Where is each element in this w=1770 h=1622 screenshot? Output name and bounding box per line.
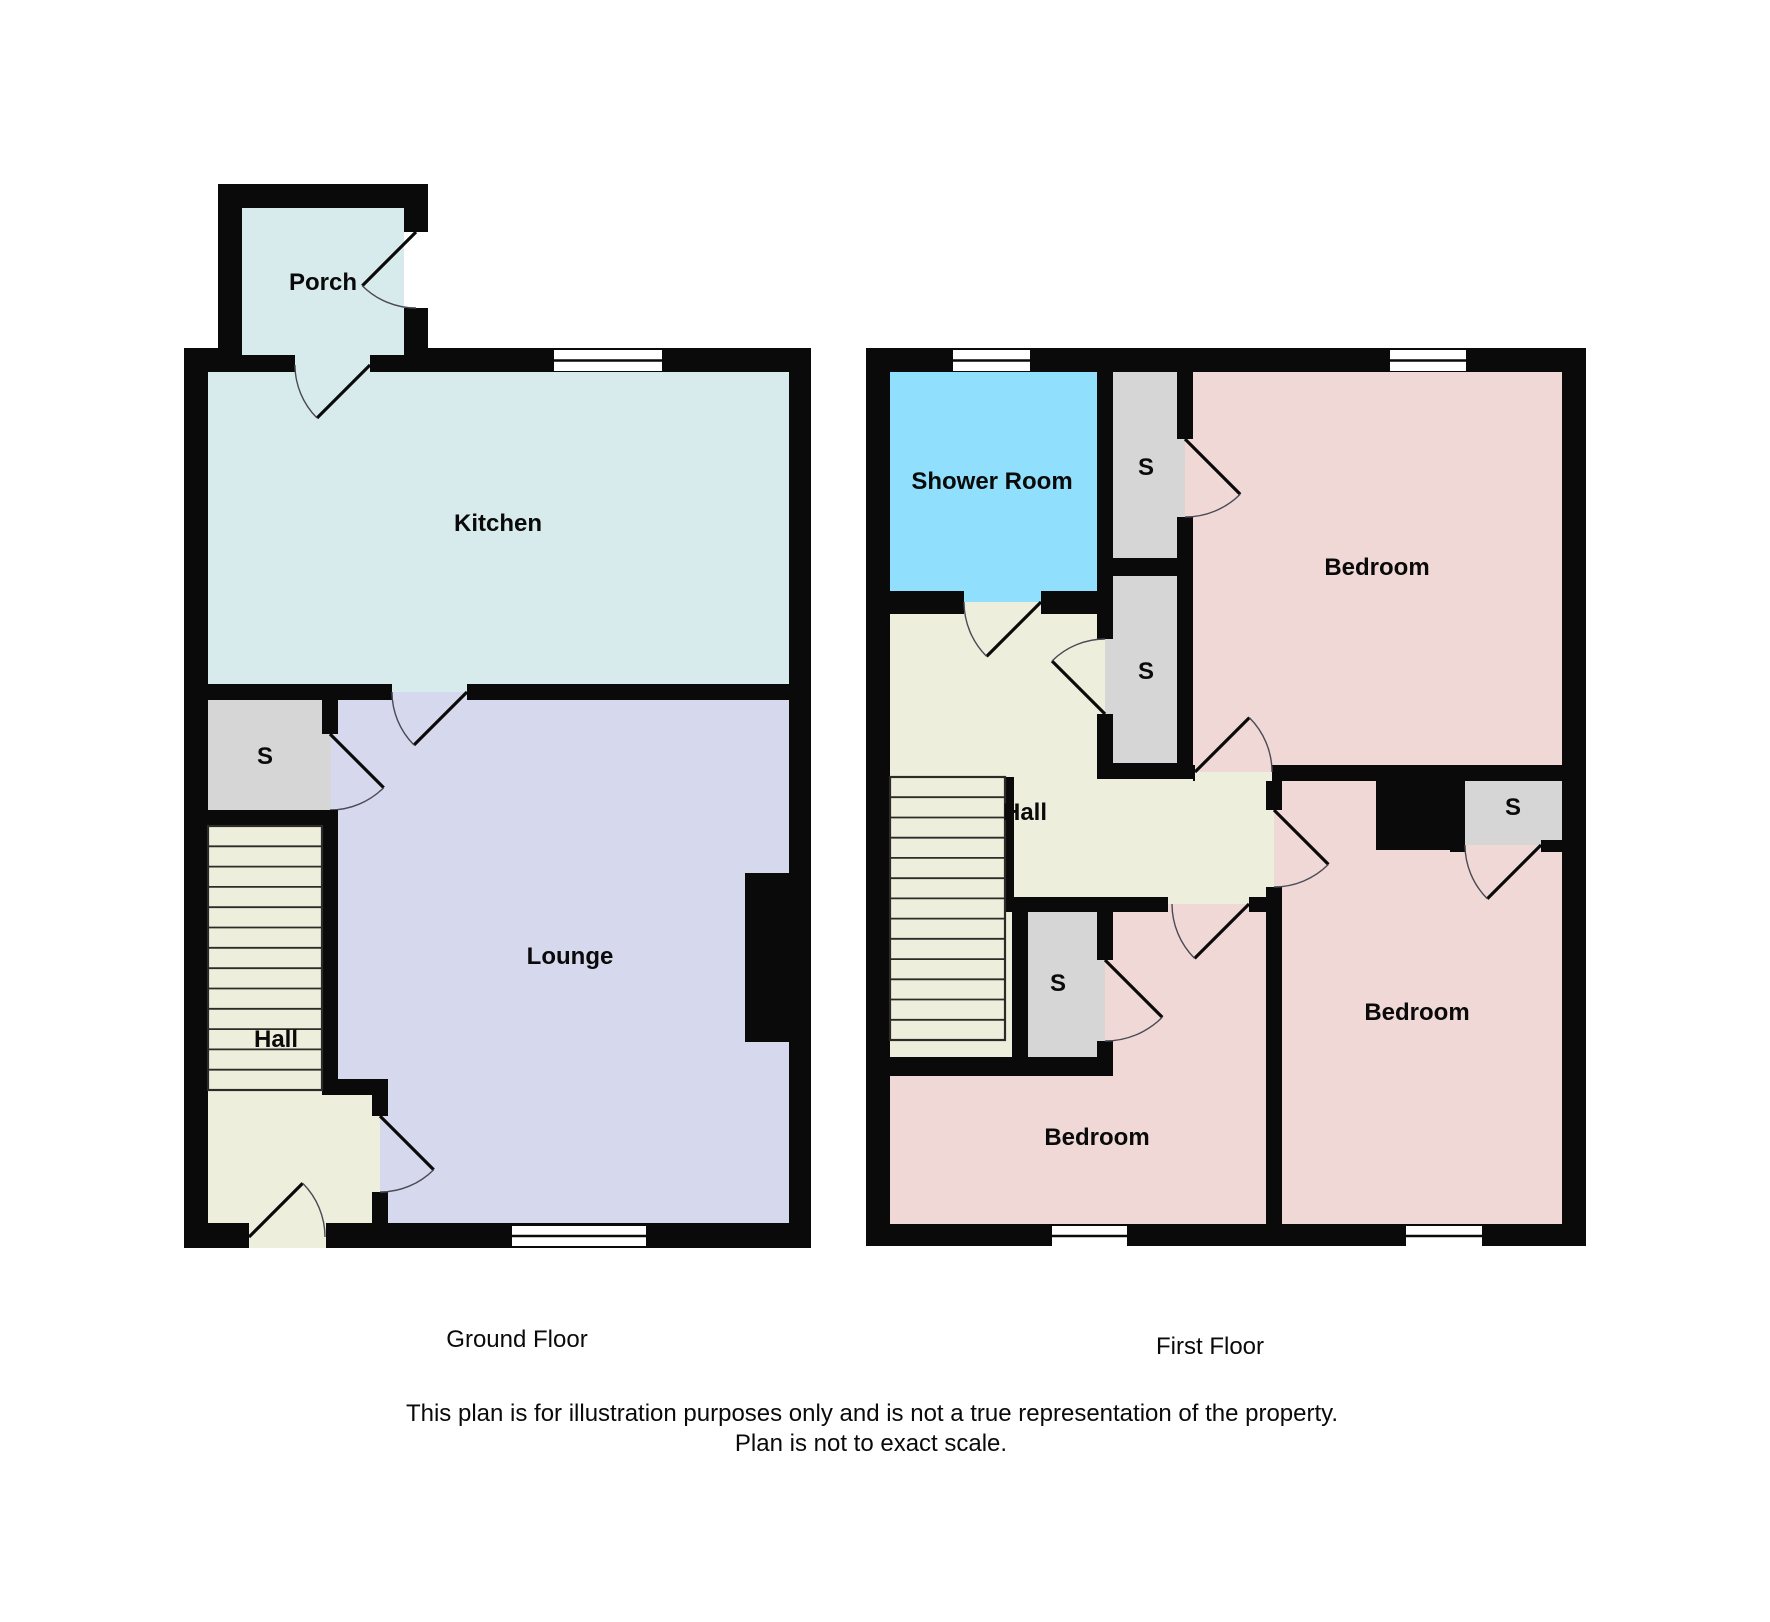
svg-text:S: S	[1050, 970, 1066, 997]
svg-text:This plan is for illustration: This plan is for illustration purposes o…	[406, 1400, 1338, 1427]
svg-text:Hall: Hall	[254, 1026, 298, 1053]
svg-text:Hall: Hall	[1003, 799, 1047, 826]
svg-text:Shower Room: Shower Room	[911, 468, 1072, 495]
svg-text:Bedroom: Bedroom	[1364, 999, 1469, 1026]
svg-text:S: S	[1138, 658, 1154, 685]
svg-text:S: S	[1505, 794, 1521, 821]
svg-text:Bedroom: Bedroom	[1324, 554, 1429, 581]
svg-text:S: S	[1138, 454, 1154, 481]
svg-text:Ground Floor: Ground Floor	[446, 1326, 587, 1353]
svg-text:S: S	[257, 743, 273, 770]
svg-text:Porch: Porch	[289, 269, 357, 296]
svg-text:Bedroom: Bedroom	[1044, 1124, 1149, 1151]
svg-text:Kitchen: Kitchen	[454, 510, 542, 537]
svg-text:Plan is not to exact scale.: Plan is not to exact scale.	[735, 1430, 1007, 1457]
svg-text:Lounge: Lounge	[527, 943, 614, 970]
svg-text:First Floor: First Floor	[1156, 1333, 1264, 1360]
